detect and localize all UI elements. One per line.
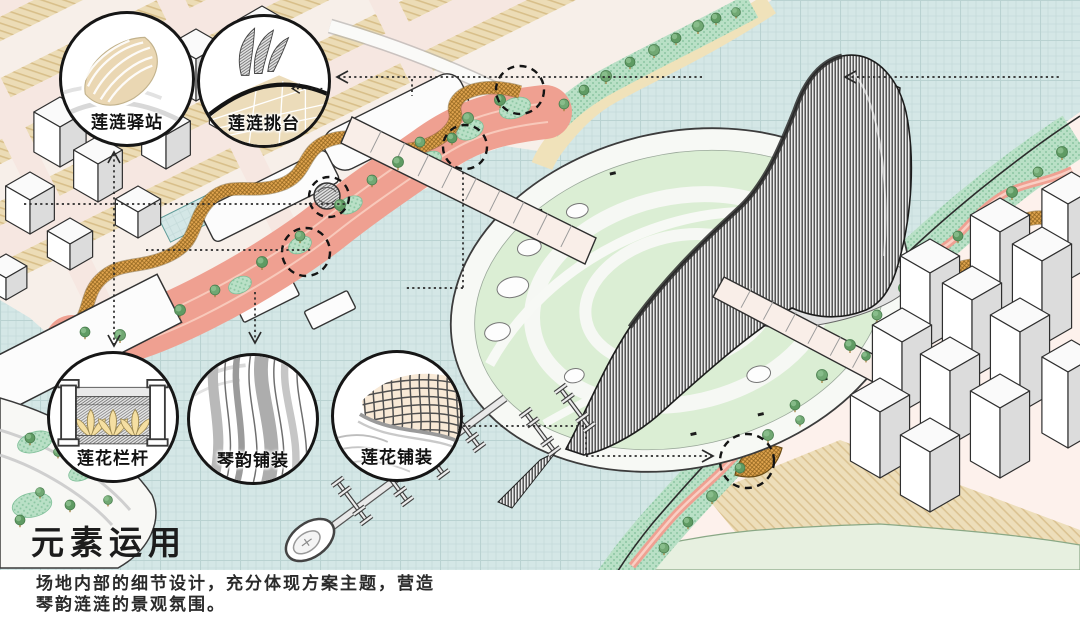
description-line-2: 琴韵涟涟的景观氛围。: [36, 595, 226, 614]
callout-label: 莲涟挑台: [200, 109, 328, 134]
callout-label: 莲涟驿站: [62, 108, 192, 133]
callout-label: 莲花铺装: [334, 443, 460, 468]
callout-qin-paving: 琴韵铺装: [187, 353, 319, 485]
caption-band: 场地内部的细节设计，充分体现方案主题，营造 琴韵涟涟的景观氛围。: [0, 570, 1080, 619]
section-description: 场地内部的细节设计，充分体现方案主题，营造 琴韵涟涟的景观氛围。: [36, 573, 435, 615]
callout-label: 莲花栏杆: [50, 444, 176, 469]
callout-lotus-railing: 莲花栏杆: [47, 351, 179, 483]
description-line-1: 场地内部的细节设计，充分体现方案主题，营造: [36, 574, 435, 593]
callout-lotus-station: 莲涟驿站: [59, 11, 195, 147]
callout-lotus-deck: 莲涟挑台: [197, 14, 331, 148]
section-title: 元素运用: [31, 516, 187, 564]
callout-label: 琴韵铺装: [190, 446, 316, 471]
design-board: 莲涟驿站 莲涟挑台: [0, 0, 1080, 619]
callout-lotus-paving: 莲花铺装: [331, 350, 463, 482]
